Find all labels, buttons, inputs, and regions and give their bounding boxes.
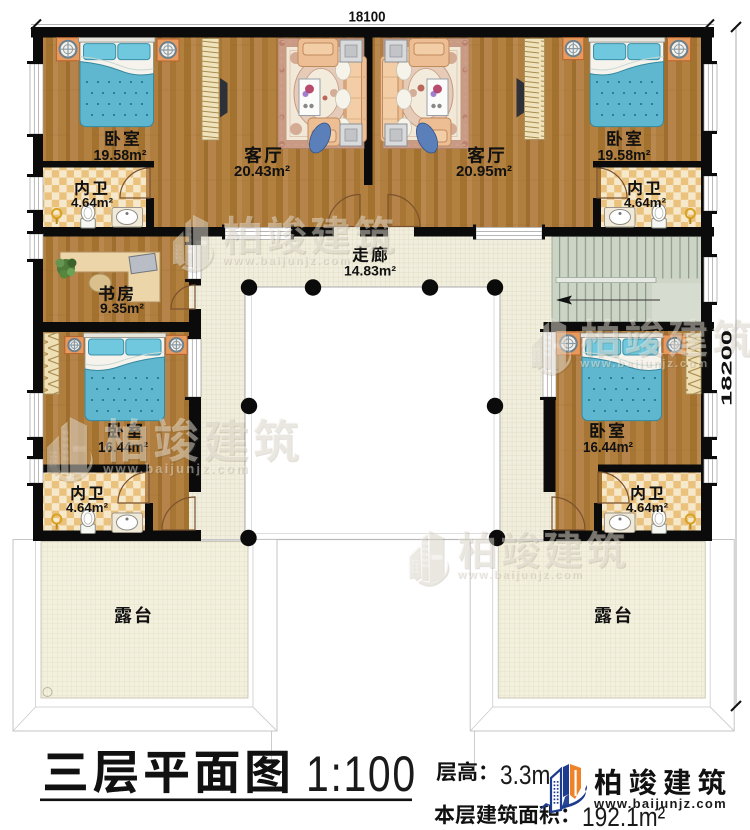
svg-text:4.64m²: 4.64m² [626,500,669,515]
svg-text:www.baijunjz.com: www.baijunjz.com [593,796,727,811]
svg-text:18200: 18200 [719,330,736,406]
svg-text:3.3m: 3.3m [500,760,550,790]
svg-text:4.64m²: 4.64m² [66,500,109,515]
svg-text:9.35m²: 9.35m² [100,300,144,316]
svg-text:1:100: 1:100 [306,746,417,802]
svg-text:4.64m²: 4.64m² [71,195,114,210]
svg-text:16.44m²: 16.44m² [583,440,633,456]
svg-text:19.58m²: 19.58m² [598,148,651,164]
svg-text:18100: 18100 [349,9,386,26]
svg-text:4.64m²: 4.64m² [624,195,667,210]
svg-text:19.58m²: 19.58m² [94,148,147,164]
svg-text:20.43m²: 20.43m² [234,163,290,180]
svg-text:20.95m²: 20.95m² [456,163,512,180]
